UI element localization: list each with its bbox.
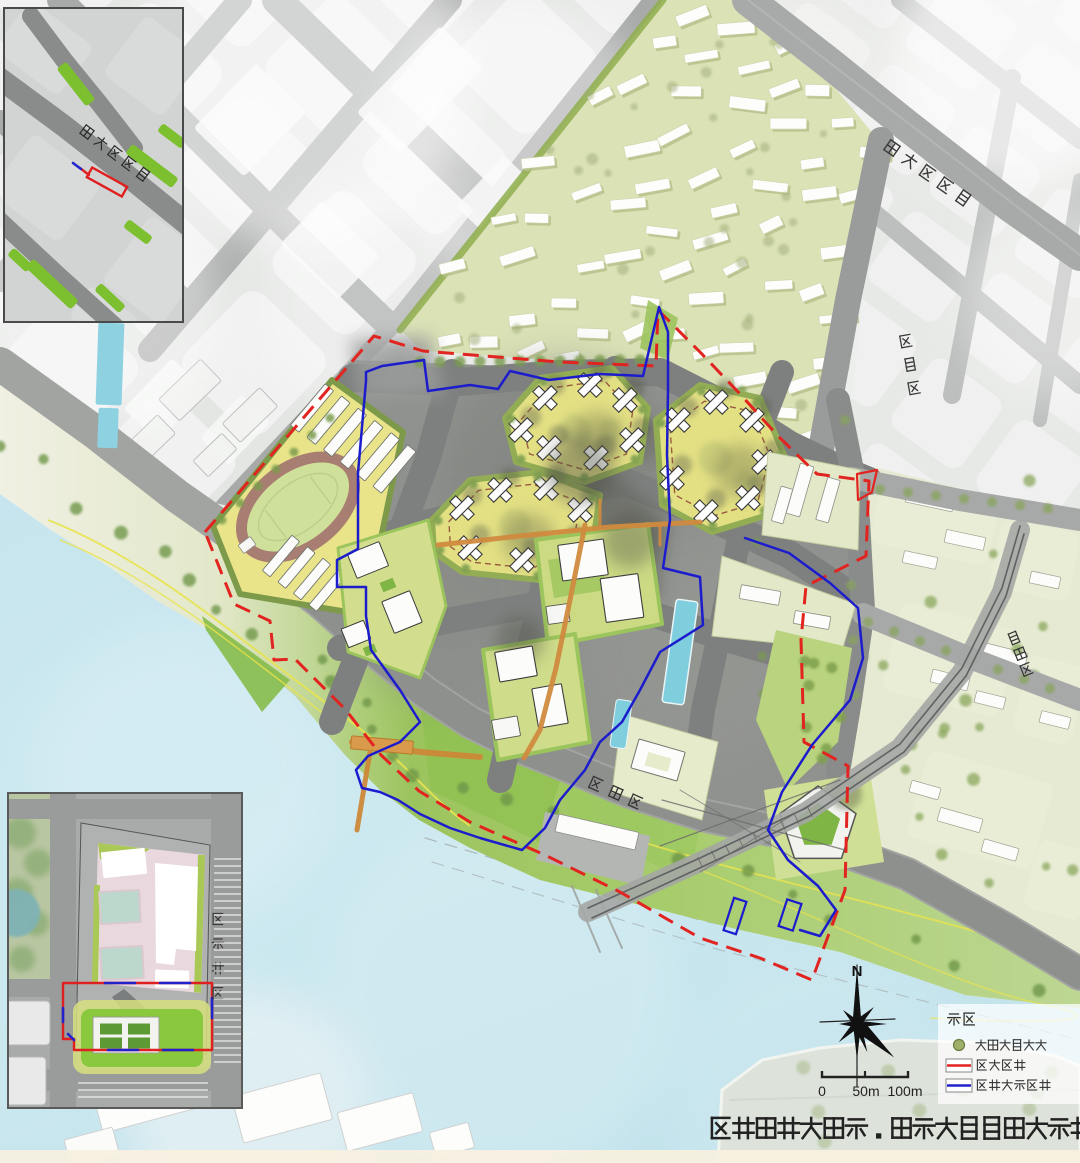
svg-text:N: N — [852, 963, 863, 980]
svg-text:0: 0 — [818, 1083, 826, 1099]
svg-text:100m: 100m — [887, 1083, 922, 1099]
svg-text:50m: 50m — [852, 1083, 879, 1099]
